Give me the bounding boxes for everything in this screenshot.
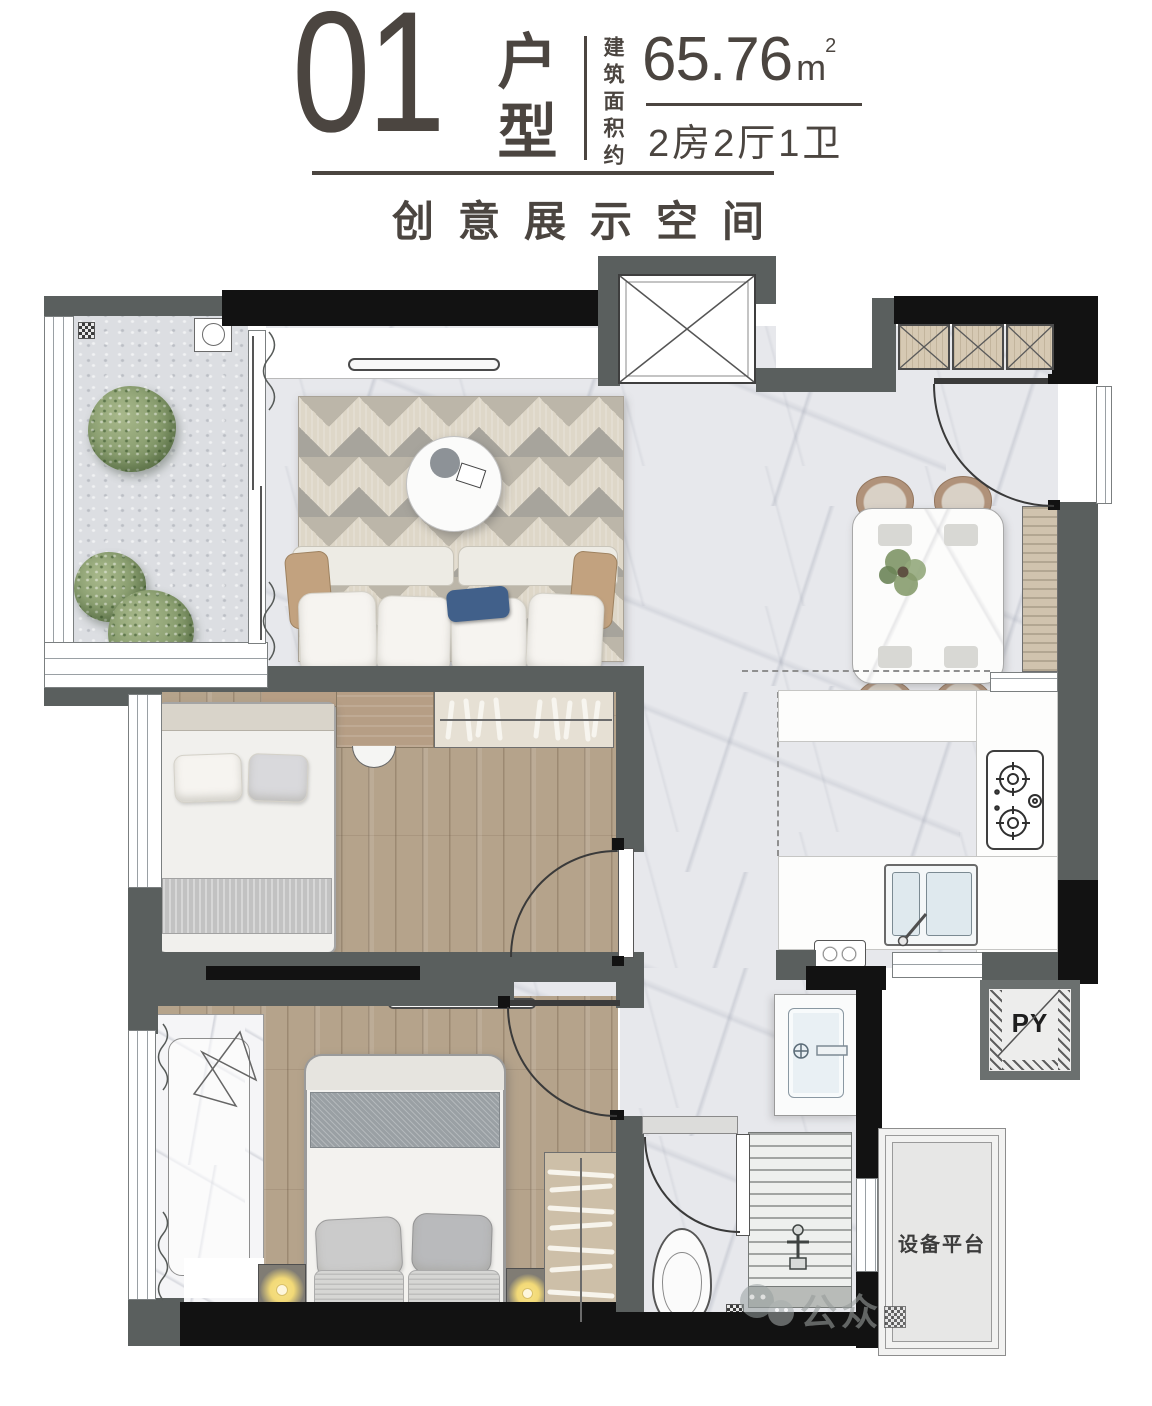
sofa-seat-pillow [376,595,452,675]
master-door-leaf [508,1000,620,1006]
wall [1058,694,1098,880]
balcony-side-window [44,316,74,644]
master-wardrobe [544,1152,620,1326]
py-label-text: PY [1012,1008,1049,1039]
bedroom2-blanket [162,878,332,934]
area-sup: 2 [825,35,835,57]
bedroom2-headboard [160,704,334,731]
master-bed-blanket-band [310,1092,500,1148]
entry-door-leaf [934,378,1056,384]
subtitle: 创意展示空间 [392,188,788,249]
area-unit: m [796,47,825,88]
nightstand-lamp [522,1288,533,1299]
wall [598,256,776,274]
wall [128,980,514,1006]
balcony-bottom-window [44,642,268,688]
balcony-sliding-door [248,330,266,644]
small-appliance [814,940,866,968]
door-jamb [1048,374,1060,384]
wall [754,256,776,304]
sofa-navy-pillow [446,585,511,622]
shrub [88,386,176,472]
entry-cabinet [1006,324,1054,370]
wall [806,966,886,990]
entry-cabinet [898,324,950,370]
wall [756,368,878,392]
dining-side-cabinet [1022,506,1058,672]
bedroom2-door-leaf [618,848,634,958]
exterior-gap [776,300,874,368]
gas-stove [986,750,1044,850]
entry-side-window [1096,386,1112,504]
wall [598,256,620,386]
wall [894,296,1098,324]
master-pillow [411,1213,493,1276]
unit-number: 01 [292,0,442,158]
bedroom2-desk [336,690,434,748]
wall [128,998,158,1034]
dining-table [852,508,1004,684]
tv [348,358,500,371]
coffee-table-tray [430,448,460,478]
bedroom2-pillow [247,753,309,803]
wall [1058,880,1098,984]
area-prefix: 建筑面积约 [597,36,627,171]
floor-drain-icon [78,322,95,339]
door-jamb [612,838,624,850]
entry-cabinet [952,324,1004,370]
equipment-platform-label: 设备平台 [898,1228,986,1257]
bedroom2-pillow [173,753,243,803]
sofa-seat-pillow [525,592,605,676]
nightstand-lamp [276,1284,288,1296]
sink-basin [926,872,972,936]
dining-placemat [944,524,978,546]
door-jamb [1048,500,1060,510]
kitchen-open-boundary-dash [742,670,990,672]
watermark-text-span: 公众 [800,1292,882,1333]
master-bed-footboard [306,1056,504,1090]
unit-label: 户型 [492,30,552,170]
door-jamb [612,956,624,966]
flue-shaft-box [618,274,756,384]
wall [982,952,1058,980]
door-jamb [610,1110,624,1120]
area-value-row: 65.76m2 [642,26,835,94]
bathroom-threshold [642,1116,738,1134]
sofa-seat-pillow [298,591,379,676]
dining-placemat [878,524,912,546]
vanity-basin [788,1008,844,1098]
bedroom2-wardrobe [434,690,614,748]
sink-basin [892,872,920,936]
wall [616,980,644,1008]
py-hatch [1002,1060,1058,1070]
wall [1058,502,1098,694]
equipment-platform-inner: 设备平台 [892,1142,992,1342]
header-rule [312,171,774,175]
area-underline [646,103,862,106]
py-hatch [1058,990,1070,1070]
dining-placemat [944,646,978,668]
window [892,952,984,978]
wall [872,298,896,392]
dining-placemat [878,646,912,668]
wall [616,692,644,852]
bay-seat-cushion [168,1038,250,1276]
washer-drum-icon [202,323,225,346]
door-jamb [498,996,510,1008]
window [856,1178,878,1272]
rooms-spec: 2房2厅1卫 [648,112,843,167]
master-bay-window [128,1030,156,1300]
bathroom-door-leaf [736,1134,750,1236]
wall [128,1298,184,1346]
floorplan-page: 01 户型 建筑面积约 65.76m2 2房2厅1卫 创意展示空间 [0,0,1152,1406]
tv-console [256,328,644,379]
bay-seat-nook [184,1258,264,1298]
toilet-bowl-line [662,1252,702,1316]
area-value: 65.76 [642,25,792,94]
watermark-text: 公众 [800,1282,882,1336]
header-divider [584,36,587,160]
py-label: PY [1002,990,1058,1056]
wall [222,290,644,326]
py-hatch [990,990,1002,1070]
wall [180,1302,644,1346]
wall [616,1116,644,1316]
bedroom2-window [128,694,162,888]
shower-area [748,1132,852,1288]
kitchen-window [990,672,1058,692]
watermark-qr [884,1306,906,1328]
